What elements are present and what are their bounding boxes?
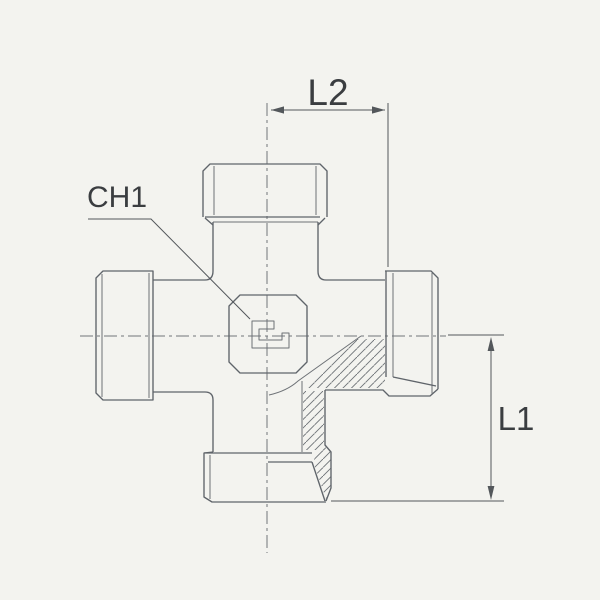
hatch-bottom-corner	[303, 391, 324, 450]
fitting-drawing: L2 CH1 L1	[0, 0, 600, 600]
paper-background	[0, 0, 600, 600]
label-ch1: CH1	[87, 181, 147, 214]
drawing-canvas: L2 CH1 L1	[0, 0, 600, 600]
label-l2: L2	[307, 72, 348, 113]
label-l1: L1	[498, 400, 535, 437]
